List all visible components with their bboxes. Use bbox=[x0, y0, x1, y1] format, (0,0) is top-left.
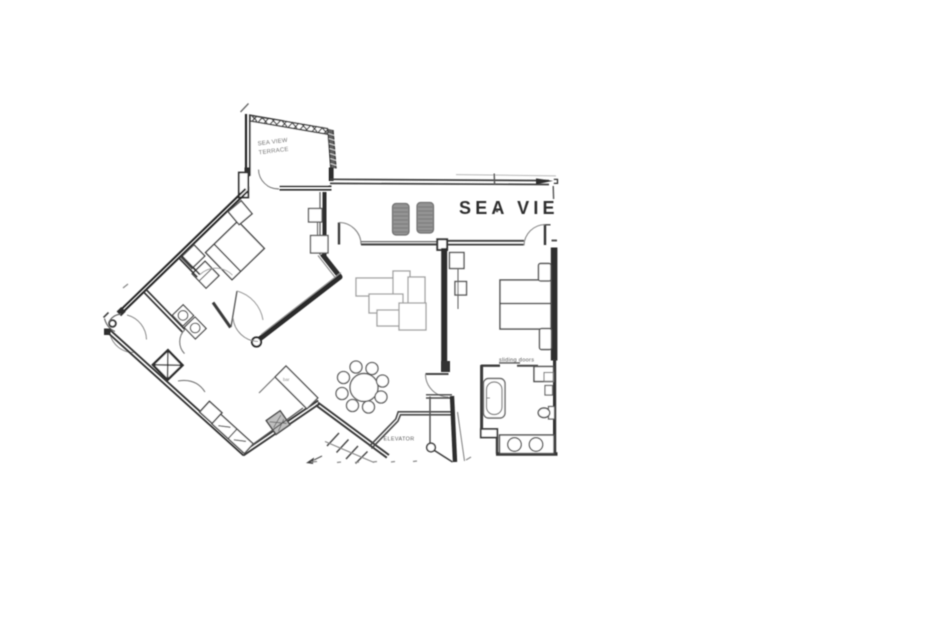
svg-text:SEA VIE: SEA VIE bbox=[459, 198, 559, 218]
svg-text:ELEVATOR: ELEVATOR bbox=[384, 437, 415, 443]
svg-text:bar: bar bbox=[283, 377, 290, 382]
